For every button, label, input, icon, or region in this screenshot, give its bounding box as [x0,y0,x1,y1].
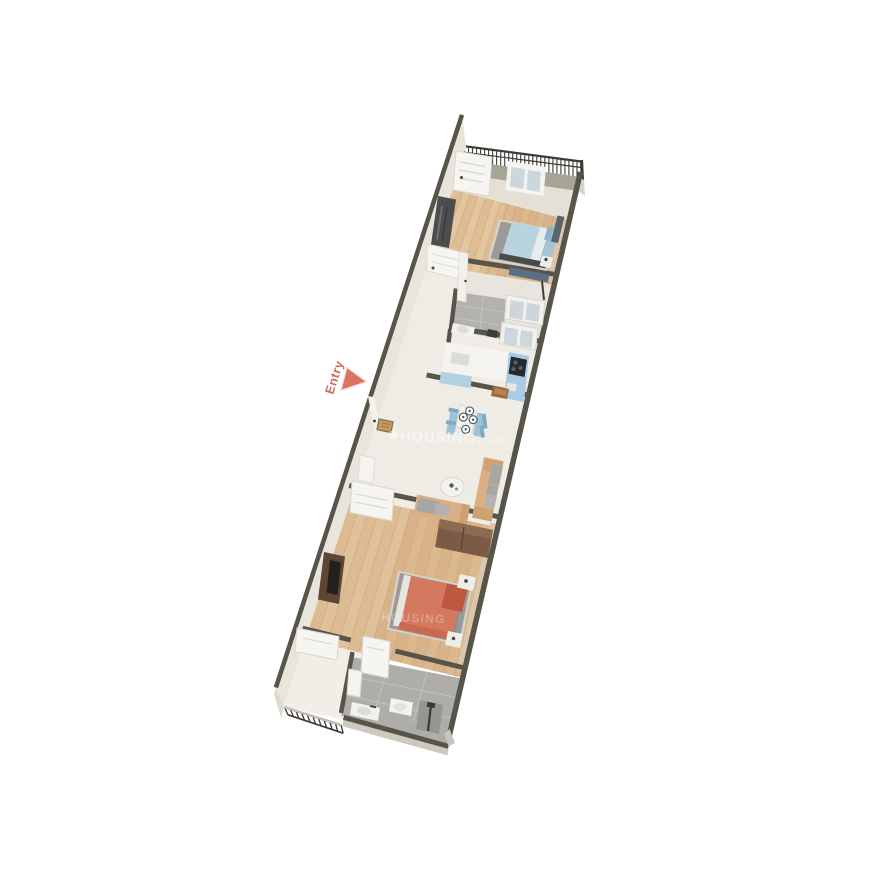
svg-text:HOUSING: HOUSING [381,610,446,626]
